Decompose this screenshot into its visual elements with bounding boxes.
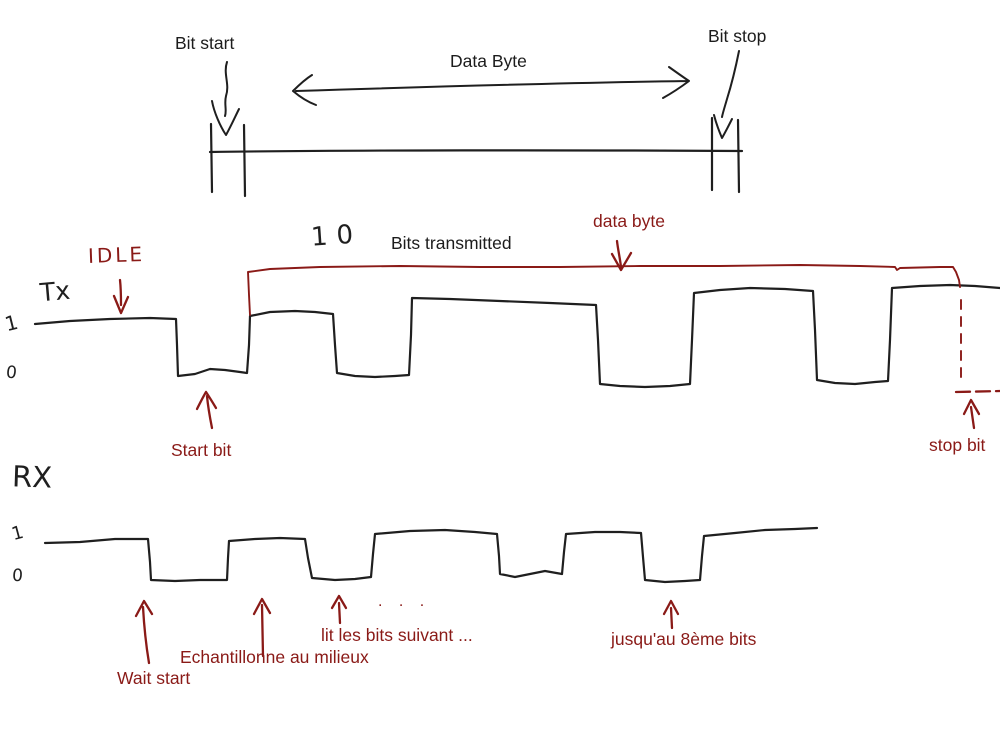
ellipsis-dots: . . . — [378, 593, 430, 611]
stop-bit-arrow — [964, 400, 979, 428]
bits-transmitted-label: Bits transmitted — [391, 234, 512, 253]
bit-start-arrow — [212, 62, 239, 135]
tx-line-label: Tx — [39, 277, 71, 307]
start-bit-label: Start bit — [171, 441, 231, 460]
stop-bit-label: stop bit — [929, 436, 985, 455]
wait-start-label: Wait start — [117, 669, 190, 688]
rx-level-low-label: 0 — [11, 567, 23, 586]
rx-line-label: RX — [11, 461, 52, 494]
sample-middle-label: Echantillonne au milieux — [180, 648, 369, 667]
measure-tick-right-outer — [738, 120, 739, 192]
data-byte-span-label: Data Byte — [450, 52, 527, 71]
rx-waveform — [45, 528, 817, 582]
tx-data-byte-label: data byte — [593, 212, 665, 231]
measure-tick-left-outer — [211, 124, 212, 192]
data-byte-bracket — [248, 265, 960, 315]
idle-arrow — [114, 280, 128, 313]
wait-start-arrow — [136, 601, 152, 663]
bit-stop-arrow — [714, 51, 739, 138]
bits-count-handwritten: 10 — [310, 220, 363, 252]
bit-start-label: Bit start — [175, 34, 234, 53]
until-8th-arrow — [664, 601, 678, 628]
tx-level-low-label: 0 — [5, 363, 18, 383]
tx-waveform — [35, 285, 1000, 387]
until-8th-label: jusqu'au 8ème bits — [611, 630, 756, 649]
uart-hand-drawn-diagram: Bit start Data Byte Bit stop Bits transm… — [0, 0, 1000, 750]
measure-tick-left-inner — [244, 125, 245, 196]
read-next-label: lit les bits suivant ... — [321, 626, 473, 645]
stop-bit-dashed-level — [956, 391, 1000, 392]
start-bit-arrow — [197, 392, 216, 428]
data-byte-span-arrow — [293, 67, 689, 105]
idle-label: IDLE — [88, 243, 146, 267]
drawing-layer — [0, 0, 1000, 750]
bit-stop-label: Bit stop — [708, 27, 766, 46]
measure-line — [210, 150, 742, 152]
read-next-arrow — [332, 596, 346, 623]
